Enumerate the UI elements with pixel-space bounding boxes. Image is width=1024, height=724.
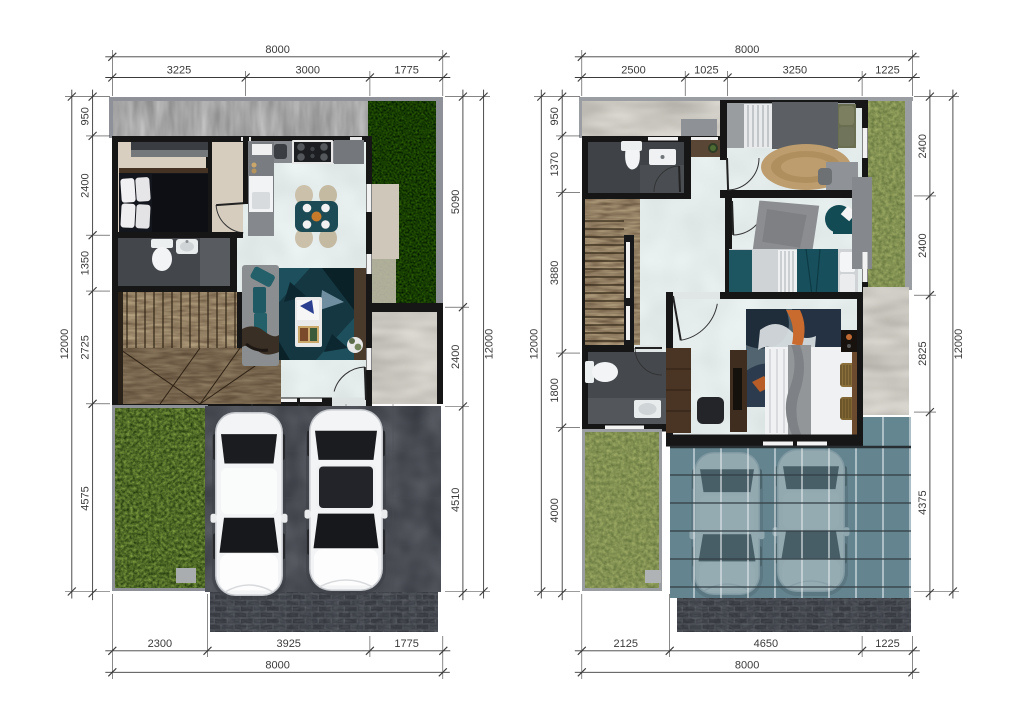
svg-text:8000: 8000 (735, 44, 759, 56)
svg-text:2825: 2825 (917, 341, 929, 365)
svg-text:950: 950 (549, 107, 561, 125)
svg-text:3000: 3000 (296, 65, 320, 77)
svg-text:4375: 4375 (917, 490, 929, 514)
svg-text:3880: 3880 (549, 261, 561, 285)
svg-text:12000: 12000 (953, 329, 965, 360)
svg-text:950: 950 (80, 107, 92, 125)
svg-text:3925: 3925 (276, 638, 300, 650)
svg-text:2300: 2300 (148, 638, 172, 650)
svg-text:1225: 1225 (875, 65, 899, 77)
svg-text:2400: 2400 (80, 173, 92, 197)
svg-text:4510: 4510 (450, 488, 462, 512)
svg-text:8000: 8000 (265, 659, 289, 671)
svg-text:4575: 4575 (80, 486, 92, 510)
svg-text:12000: 12000 (484, 329, 496, 360)
svg-text:1370: 1370 (549, 152, 561, 176)
svg-text:1775: 1775 (394, 638, 418, 650)
svg-text:3250: 3250 (783, 65, 807, 77)
svg-text:1800: 1800 (549, 378, 561, 402)
svg-text:4000: 4000 (549, 498, 561, 522)
svg-text:1025: 1025 (694, 65, 718, 77)
svg-text:2500: 2500 (621, 65, 645, 77)
svg-text:12000: 12000 (528, 329, 540, 360)
svg-text:2400: 2400 (450, 345, 462, 369)
svg-text:8000: 8000 (735, 659, 759, 671)
svg-text:3225: 3225 (167, 65, 191, 77)
svg-text:1225: 1225 (875, 638, 899, 650)
svg-text:5090: 5090 (450, 190, 462, 214)
svg-text:2400: 2400 (917, 134, 929, 158)
svg-text:2125: 2125 (614, 638, 638, 650)
svg-text:1775: 1775 (394, 65, 418, 77)
svg-text:8000: 8000 (265, 44, 289, 56)
svg-text:2725: 2725 (80, 335, 92, 359)
svg-text:2400: 2400 (917, 233, 929, 257)
svg-text:4650: 4650 (754, 638, 778, 650)
svg-text:12000: 12000 (59, 329, 71, 360)
svg-text:1350: 1350 (80, 251, 92, 275)
